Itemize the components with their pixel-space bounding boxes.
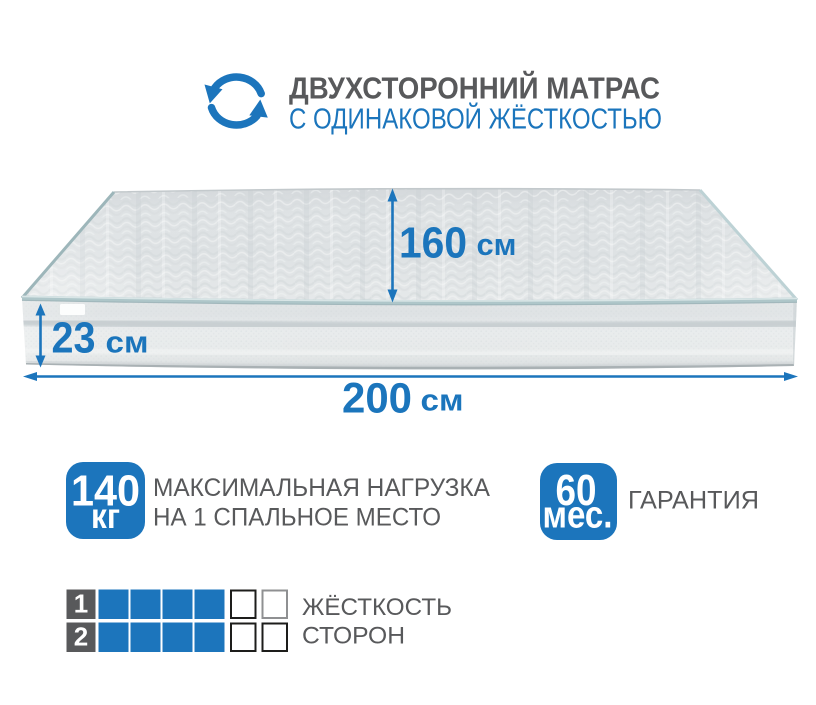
svg-text:23: 23 <box>52 314 96 363</box>
svg-text:С ОДИНАКОВОЙ ЖЁСТКОСТЬЮ: С ОДИНАКОВОЙ ЖЁСТКОСТЬЮ <box>289 102 662 136</box>
svg-text:НА 1 СПАЛЬНОЕ МЕСТО: НА 1 СПАЛЬНОЕ МЕСТО <box>153 503 441 531</box>
svg-text:см: см <box>421 383 464 418</box>
svg-text:1: 1 <box>74 589 88 619</box>
svg-text:160: 160 <box>399 219 467 268</box>
svg-text:СТОРОН: СТОРОН <box>302 622 405 649</box>
svg-text:кг: кг <box>91 497 120 536</box>
svg-text:ДВУХСТОРОННИЙ МАТРАС: ДВУХСТОРОННИЙ МАТРАС <box>289 70 660 106</box>
svg-text:МАКСИМАЛЬНАЯ НАГРУЗКА: МАКСИМАЛЬНАЯ НАГРУЗКА <box>153 474 490 502</box>
svg-text:2: 2 <box>74 622 88 652</box>
svg-text:см: см <box>106 325 149 360</box>
svg-text:мес.: мес. <box>543 495 613 537</box>
svg-text:см: см <box>477 227 517 262</box>
svg-text:200: 200 <box>342 375 412 423</box>
svg-text:ЖЁСТКОСТЬ: ЖЁСТКОСТЬ <box>302 594 452 621</box>
svg-text:ГАРАНТИЯ: ГАРАНТИЯ <box>628 487 759 515</box>
